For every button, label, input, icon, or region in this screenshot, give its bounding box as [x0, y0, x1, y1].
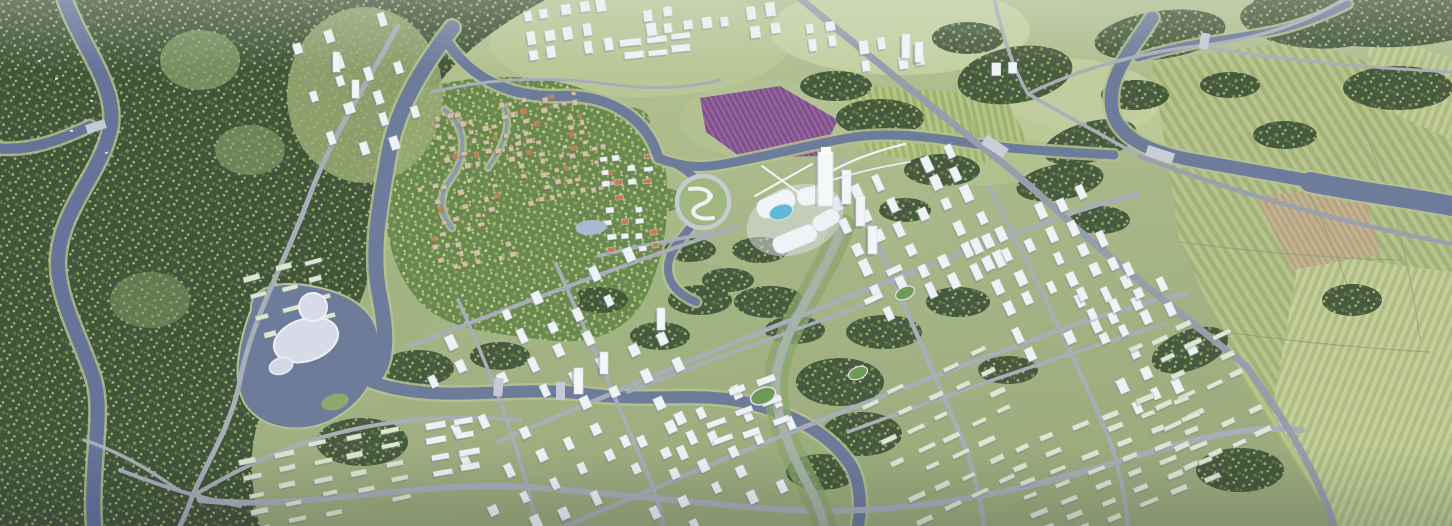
tall-tower	[657, 308, 665, 330]
village-house	[499, 102, 505, 108]
village-house	[594, 160, 599, 164]
building	[615, 195, 623, 201]
village-house	[495, 148, 501, 154]
village-house	[521, 98, 527, 103]
building	[600, 157, 607, 162]
village-house	[553, 103, 559, 108]
haze-overlay	[0, 0, 1452, 70]
village-house	[563, 145, 568, 149]
village-house	[571, 91, 576, 95]
village-house	[541, 172, 548, 178]
village-house	[539, 196, 545, 201]
village-house	[547, 117, 552, 121]
building	[607, 234, 616, 240]
building	[635, 218, 643, 223]
village-house	[440, 145, 445, 150]
village-house	[510, 112, 515, 118]
building	[635, 207, 642, 213]
village-house	[458, 251, 464, 257]
village-house	[460, 121, 466, 127]
tree-clump	[904, 154, 980, 186]
village-house	[498, 255, 503, 261]
village-house	[494, 192, 500, 198]
building	[644, 154, 651, 159]
village-house	[580, 187, 586, 193]
village-house	[566, 178, 572, 184]
tall-tower	[600, 352, 608, 374]
building	[635, 233, 642, 239]
village-house	[466, 226, 471, 232]
village-house	[461, 151, 468, 156]
village-house	[582, 151, 588, 157]
village-house	[509, 146, 514, 151]
village-house	[462, 261, 468, 267]
tall-tower	[574, 368, 583, 394]
village-house	[515, 134, 521, 139]
building	[643, 179, 652, 184]
village-house	[569, 132, 574, 138]
village-house	[483, 140, 489, 145]
building	[606, 207, 614, 213]
venue-pad-round	[299, 293, 327, 321]
village-house	[572, 165, 577, 170]
building	[621, 219, 628, 225]
city-masterplan-aerial-view	[0, 0, 1452, 526]
vignette-bottom	[0, 446, 1452, 526]
tall-tower	[856, 196, 865, 226]
village-house	[502, 115, 509, 120]
village-house	[432, 244, 438, 250]
village-house	[534, 121, 540, 127]
village-house	[519, 163, 525, 169]
village-house	[504, 133, 510, 138]
village-house	[550, 195, 556, 201]
village-house	[521, 173, 527, 178]
bridge	[556, 382, 565, 400]
forest-clearing	[215, 125, 285, 175]
village-house	[431, 236, 436, 241]
village-house	[453, 264, 459, 269]
tree-clump	[800, 71, 872, 101]
village-house	[528, 200, 534, 206]
building	[614, 179, 623, 185]
village-house	[505, 241, 511, 247]
village-house	[455, 242, 462, 248]
village-house	[526, 138, 533, 144]
village-house	[484, 196, 490, 202]
village-house	[557, 193, 562, 197]
village-house	[567, 115, 573, 120]
village-house	[569, 153, 575, 159]
village-house	[438, 206, 444, 212]
tree-clump	[572, 287, 628, 313]
building	[602, 170, 609, 175]
village-house	[508, 102, 513, 107]
landmark-tower-cap	[821, 147, 831, 154]
village-house	[482, 125, 489, 131]
village-house	[472, 139, 477, 144]
village-house	[559, 153, 564, 158]
village-house	[526, 150, 532, 155]
tree-clump	[1253, 121, 1317, 149]
village-house	[474, 152, 480, 158]
building	[652, 242, 659, 248]
village-house	[570, 191, 576, 195]
village-house	[580, 119, 585, 125]
village-house	[452, 154, 458, 159]
village-house	[492, 136, 497, 140]
village-house	[583, 140, 588, 144]
building	[628, 179, 636, 185]
tall-tower	[352, 80, 359, 98]
tree-clump	[1322, 284, 1382, 316]
village-house	[468, 119, 473, 125]
village-house	[541, 107, 548, 113]
village-house	[544, 184, 551, 189]
village-house	[448, 134, 453, 139]
village-house	[516, 151, 522, 157]
village-house	[417, 187, 423, 192]
village-house	[568, 125, 574, 131]
village-house	[442, 220, 447, 225]
village-house	[536, 140, 541, 144]
village-house	[563, 166, 568, 171]
village-house	[435, 199, 441, 205]
village-house	[435, 116, 440, 122]
village-house	[436, 135, 442, 140]
bridge	[493, 378, 504, 397]
village-house	[449, 146, 455, 152]
village-house	[468, 130, 473, 135]
village-house	[591, 187, 596, 193]
village-house	[467, 178, 472, 183]
spiral-park-pavilion	[707, 193, 713, 199]
village-house	[540, 158, 545, 164]
village-house	[577, 114, 582, 118]
village-house	[445, 242, 450, 248]
tree-clump	[702, 268, 754, 292]
village-house	[561, 101, 567, 106]
building	[627, 165, 635, 171]
village-house	[600, 144, 606, 150]
village-house	[434, 124, 440, 129]
forest-clearing	[110, 272, 190, 328]
village-house	[491, 124, 497, 129]
building	[607, 247, 615, 253]
village-house	[523, 130, 528, 136]
village-house	[454, 112, 461, 118]
village-house	[571, 145, 577, 150]
masterplan-scene	[0, 0, 1452, 526]
village-house	[523, 118, 530, 123]
building	[650, 229, 658, 235]
tree-clump	[520, 110, 600, 150]
village-house	[579, 130, 585, 135]
village-house	[549, 94, 555, 99]
village-house	[575, 177, 581, 182]
building	[621, 233, 629, 239]
village-house	[520, 108, 527, 114]
tall-tower	[868, 226, 877, 254]
village-house	[444, 157, 451, 163]
village-house	[515, 141, 522, 146]
landmark-tower	[818, 152, 833, 206]
village-house	[591, 146, 597, 151]
village-house	[555, 179, 561, 185]
building	[612, 155, 619, 161]
village-house	[538, 152, 545, 157]
tree-clump	[1200, 72, 1260, 98]
village-house	[475, 161, 480, 167]
village-house	[476, 213, 481, 218]
village-house	[554, 168, 559, 173]
building	[639, 246, 647, 251]
village-house	[572, 99, 579, 105]
village-house	[508, 156, 515, 162]
village-house	[447, 113, 454, 119]
building	[602, 181, 610, 187]
village-house	[464, 163, 470, 169]
building	[644, 167, 653, 172]
village-house	[475, 259, 480, 265]
village-house	[485, 148, 492, 154]
village-house	[457, 189, 464, 196]
